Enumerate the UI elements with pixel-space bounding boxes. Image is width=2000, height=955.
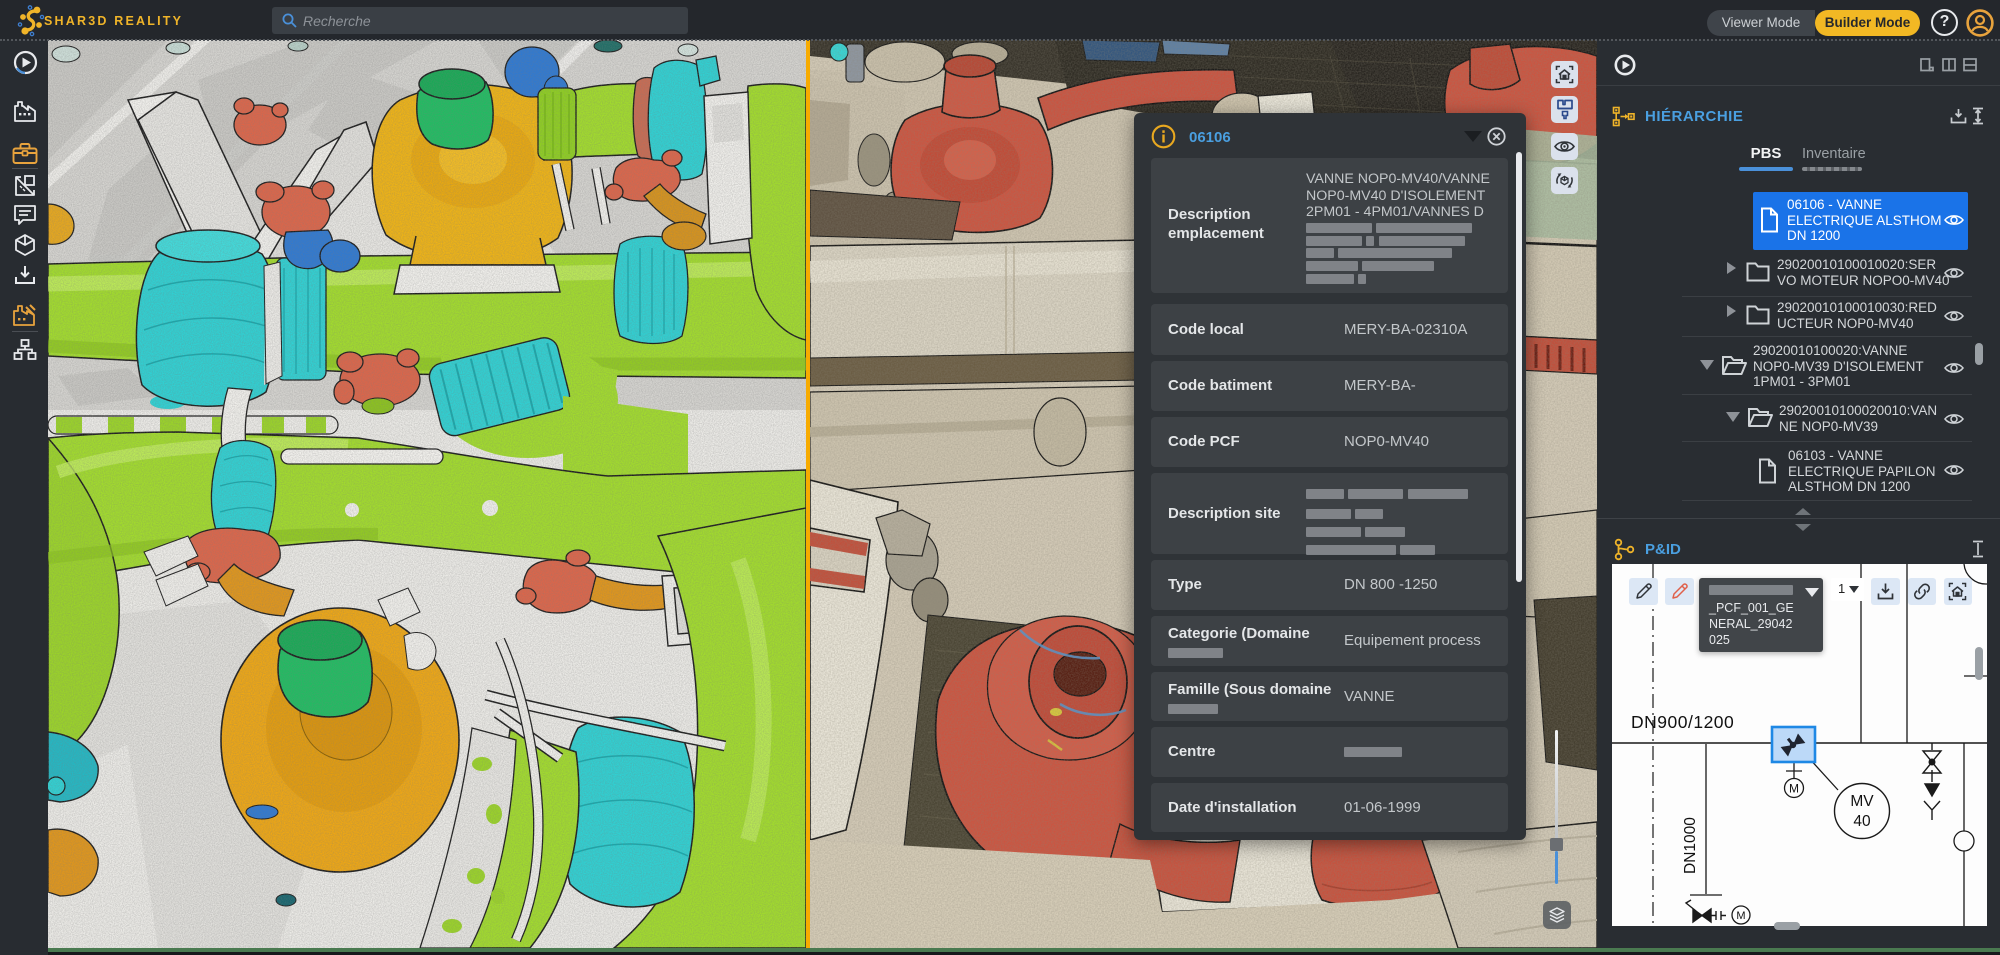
svg-text:MV: MV — [1850, 793, 1874, 810]
svg-text:40: 40 — [1853, 813, 1871, 830]
svg-text:DN1000: DN1000 — [1682, 817, 1699, 874]
svg-text:M: M — [1736, 910, 1745, 922]
svg-text:DN900/1200: DN900/1200 — [1631, 712, 1734, 732]
svg-text:M: M — [1789, 782, 1799, 796]
